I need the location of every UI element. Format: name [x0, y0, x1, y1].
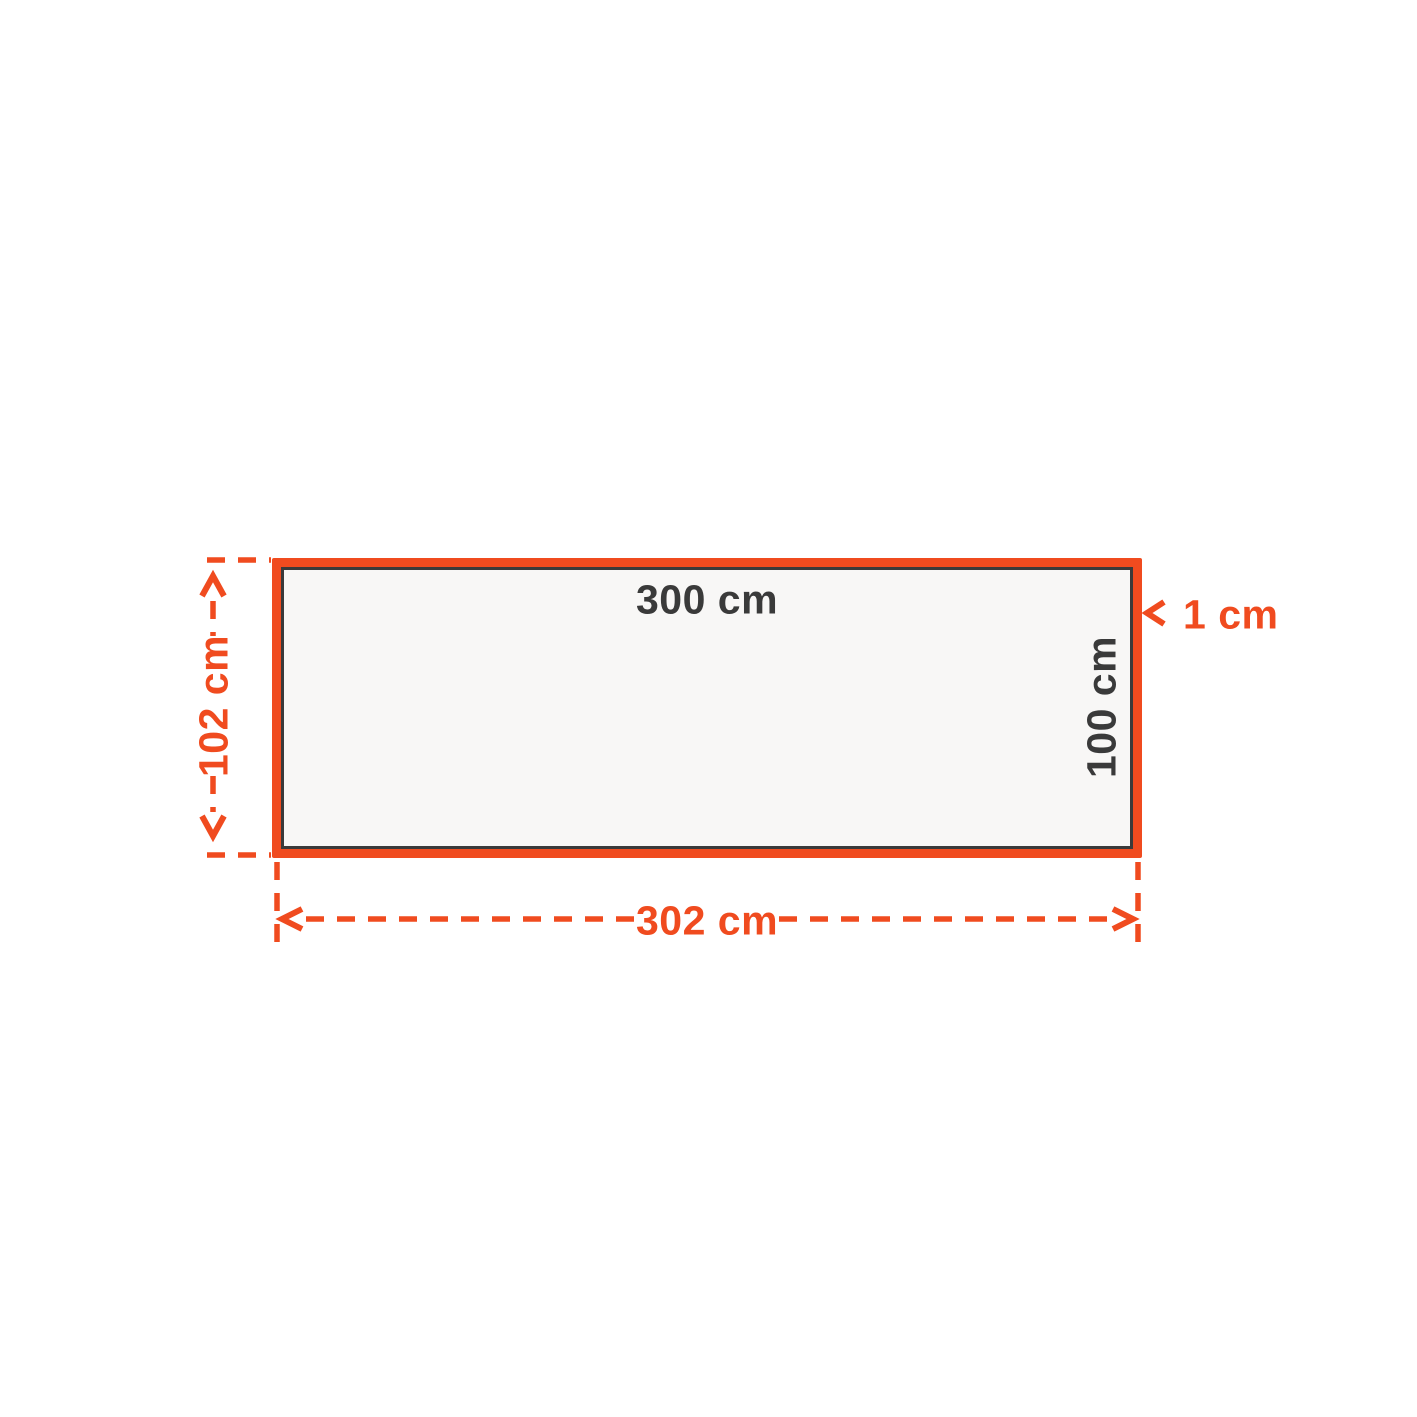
inner-width-label: 300 cm [636, 577, 778, 624]
border-thickness-label: 1 cm [1183, 592, 1278, 639]
diagram-canvas: 300 cm 100 cm 102 cm 302 cm 1 cm [0, 0, 1417, 1417]
inner-height-label: 100 cm [1079, 636, 1126, 778]
thickness-arrow-left-icon [1147, 602, 1164, 624]
outer-height-label: 102 cm [191, 635, 238, 777]
outer-width-label: 302 cm [636, 898, 778, 945]
outer-width-arrow-left-icon [282, 909, 302, 929]
outer-height-arrow-up-icon [202, 576, 224, 596]
outer-height-arrow-down-icon [202, 816, 224, 836]
outer-width-arrow-right-icon [1113, 909, 1133, 929]
